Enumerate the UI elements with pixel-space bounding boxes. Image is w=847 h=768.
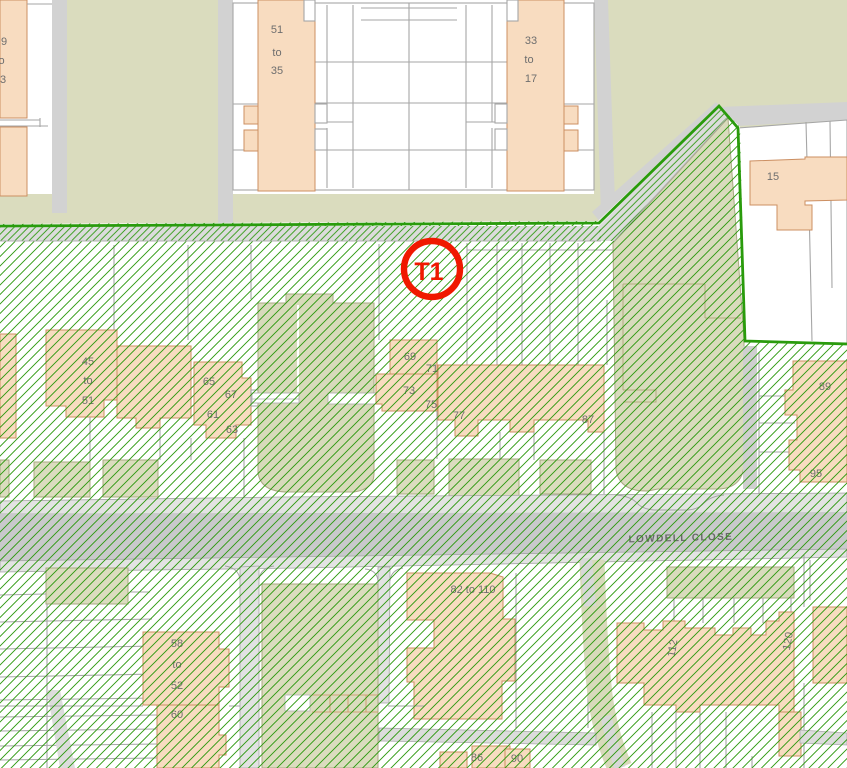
svg-text:3: 3	[0, 74, 6, 86]
svg-text:33: 33	[525, 35, 537, 47]
svg-text:51: 51	[271, 24, 283, 36]
svg-text:to: to	[272, 47, 281, 59]
svg-text:to: to	[0, 55, 5, 67]
svg-text:15: 15	[767, 171, 779, 183]
svg-text:9: 9	[1, 36, 7, 48]
svg-text:T1: T1	[414, 258, 443, 286]
svg-text:17: 17	[525, 73, 537, 85]
svg-text:35: 35	[271, 65, 283, 77]
svg-text:to: to	[524, 54, 533, 66]
